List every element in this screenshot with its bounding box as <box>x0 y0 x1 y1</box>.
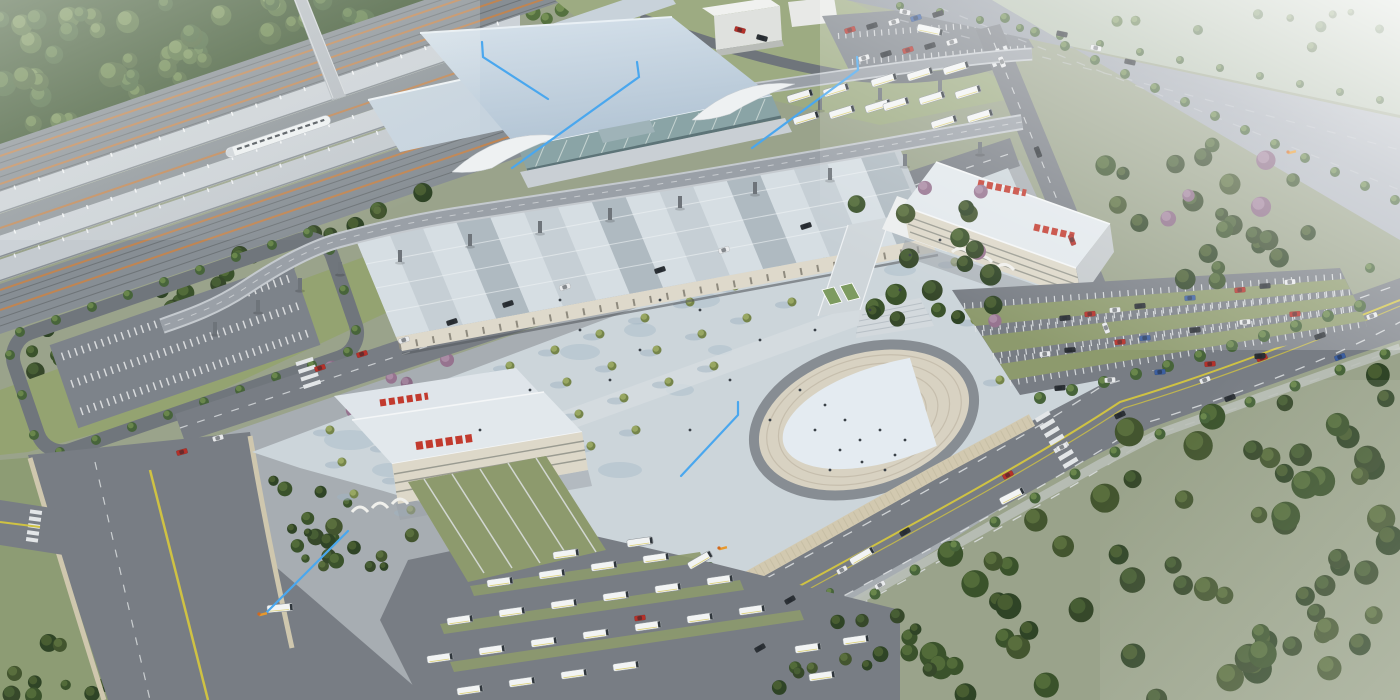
haze-bottomright <box>1100 380 1400 700</box>
haze-topright <box>820 0 1400 350</box>
haze-topleft <box>0 0 480 240</box>
aerial-rendering-stage <box>0 0 1400 700</box>
station-aerial-rendering <box>0 0 1400 700</box>
